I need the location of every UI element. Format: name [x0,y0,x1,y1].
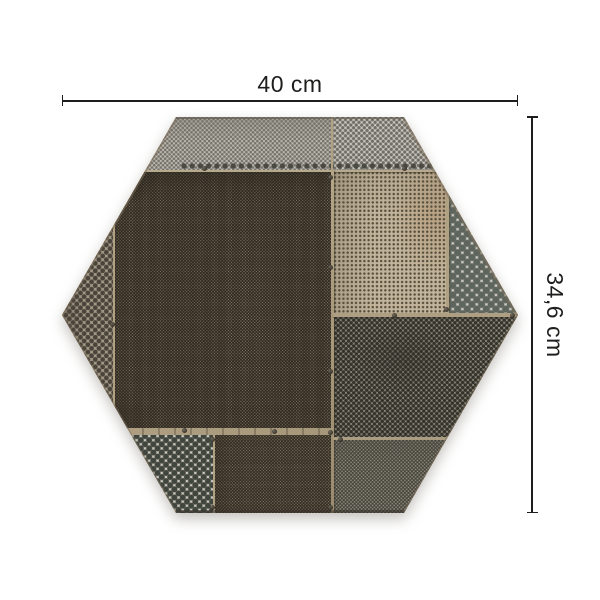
rivet [202,166,207,171]
patch-left-strip [62,171,114,513]
rivet [110,179,115,184]
patch-bottom-center-mesh [214,435,333,513]
rivet [272,429,277,434]
width-dimension-line [62,100,518,102]
rivet [510,313,515,318]
patch-center-mesh [114,171,333,428]
height-dimension-line [531,117,533,513]
rivet [402,166,407,171]
height-dimension-top-tick [527,116,538,118]
seam-vertical-band [331,117,333,171]
rivet [328,505,333,510]
hex-tile-photo [62,117,518,513]
patch-bottom-right-strip [333,439,473,513]
hex-tile [62,117,518,513]
rivet [92,427,97,432]
patch-right-bigdot-sheet [448,187,518,315]
seam-horizontal-band [62,170,518,173]
product-dimension-image: 40 cm 34,6 cm [0,0,600,600]
seam-vertical-main [331,171,334,513]
rivet [328,265,333,270]
rivet [210,505,215,510]
rivet [328,175,333,180]
patch-bottom-right-sheet [333,315,518,439]
rivet [110,417,115,422]
edge-rim-bottom [176,510,404,513]
rivet [444,307,449,312]
rivet [110,322,115,327]
width-dimension-label: 40 cm [62,71,518,97]
seam-vertical-left [113,171,116,428]
width-dimension-right-tick [517,95,519,106]
rivet [182,428,187,433]
width-dimension-left-tick [62,95,64,106]
seam-horizontal-middle [62,428,333,435]
seam-horizontal-right-middle [333,313,518,317]
rivet [328,430,333,435]
edge-rim-top [176,117,404,119]
rivet [392,313,397,318]
seam-horizontal-right-lower [333,437,518,440]
seam-vertical-bottom-left [213,432,216,513]
rivet [338,437,343,442]
rivet [444,177,449,182]
rivet [210,437,215,442]
height-dimension-bottom-tick [527,512,538,514]
height-dimension-label: 34,6 cm [541,272,568,357]
rivet [328,369,333,374]
